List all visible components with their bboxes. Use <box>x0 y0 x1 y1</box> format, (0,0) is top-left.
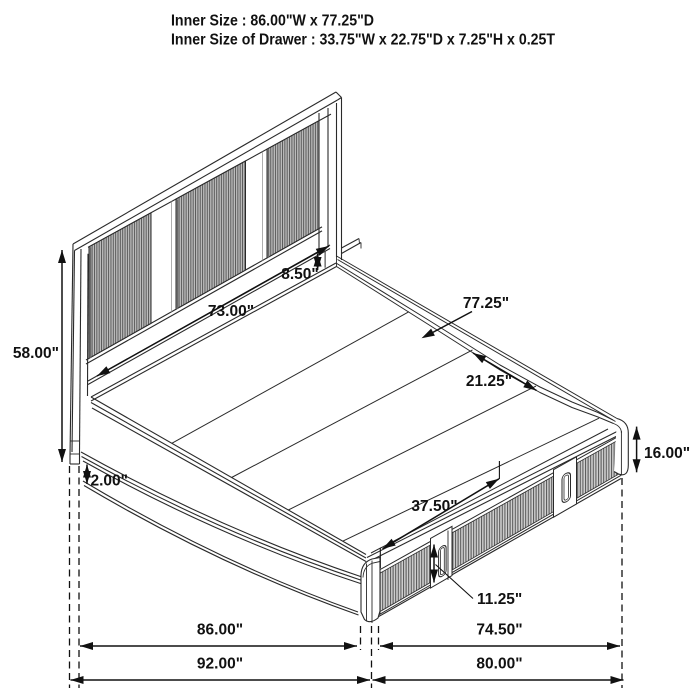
svg-text:11.25": 11.25" <box>477 591 522 608</box>
svg-text:2.00": 2.00" <box>91 473 129 490</box>
svg-text:92.00": 92.00" <box>197 656 243 673</box>
svg-text:77.25": 77.25" <box>463 295 509 312</box>
svg-text:74.50": 74.50" <box>476 622 522 639</box>
svg-text:Inner Size of Drawer : 33.75"W: Inner Size of Drawer : 33.75"W x 22.75"D… <box>171 32 555 49</box>
svg-text:73.00": 73.00" <box>208 303 254 320</box>
svg-text:80.00": 80.00" <box>476 656 522 673</box>
svg-text:37.50": 37.50" <box>411 498 457 515</box>
svg-text:86.00": 86.00" <box>197 622 243 639</box>
svg-text:Inner Size : 86.00"W x 77.25"D: Inner Size : 86.00"W x 77.25"D <box>171 13 374 30</box>
svg-text:16.00": 16.00" <box>644 445 690 462</box>
svg-text:58.00": 58.00" <box>13 345 59 362</box>
svg-text:21.25": 21.25" <box>466 373 512 390</box>
svg-text:8.50": 8.50" <box>281 266 319 283</box>
